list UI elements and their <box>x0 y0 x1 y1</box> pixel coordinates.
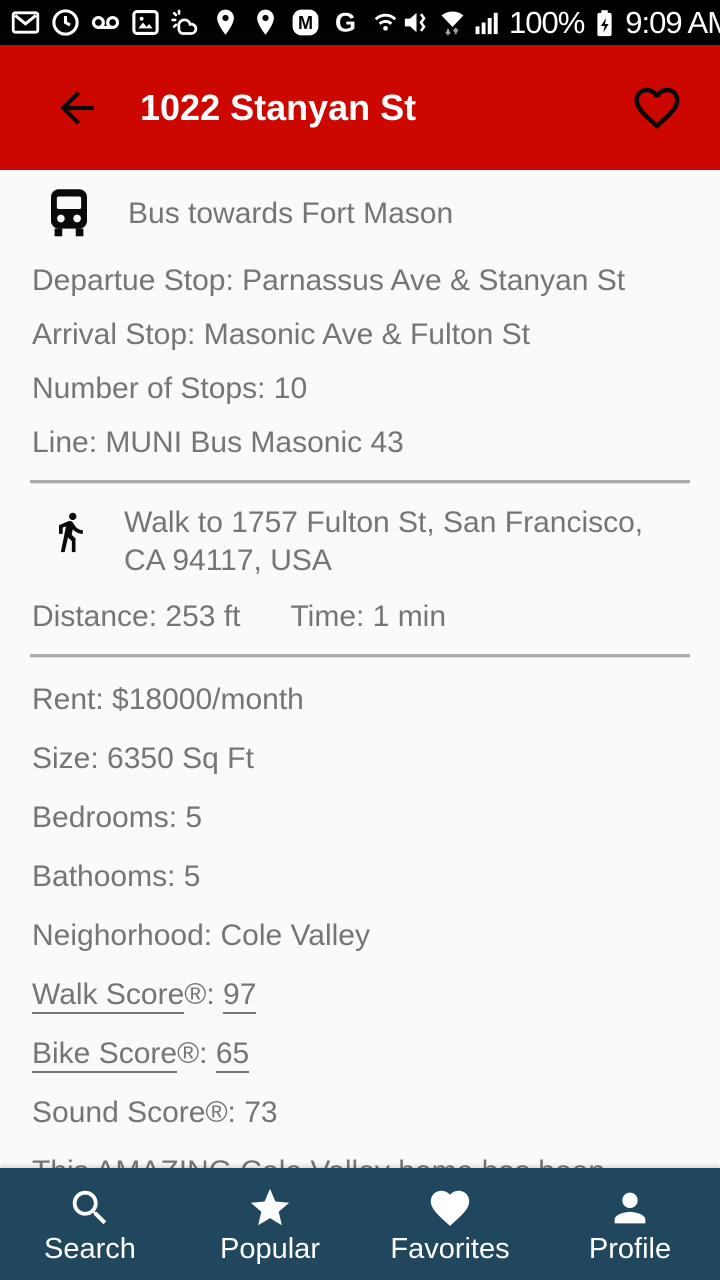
bus-icon <box>42 184 96 244</box>
walk-time-text: Time: 1 min <box>290 600 446 633</box>
search-icon <box>67 1185 113 1231</box>
nav-label-favorites: Favorites <box>390 1234 509 1264</box>
walk-distance-text: Distance: 253 ft <box>32 600 240 633</box>
status-bar-system-icons: 100% 9:09 AM <box>401 5 720 41</box>
network-monitor-icon <box>370 7 401 38</box>
walk-stats-row: Distance: 253 ftTime: 1 min <box>32 600 720 634</box>
app-bar: 1022 Stanyan St <box>0 45 720 170</box>
sound-score-text: Sound Score®: 73 <box>32 1096 720 1130</box>
nav-tab-popular[interactable]: Popular <box>180 1168 360 1280</box>
back-arrow-icon <box>52 121 102 136</box>
m-badge-icon: M <box>290 7 321 38</box>
data-usage-clock-icon <box>50 7 81 38</box>
bathrooms-text: Bathooms: 5 <box>32 860 720 894</box>
bike-score-value-link[interactable]: 65 <box>216 1037 249 1073</box>
bus-leg-title: Bus towards Fort Mason <box>128 184 453 244</box>
walking-person-icon <box>48 504 92 560</box>
favorite-button[interactable] <box>630 81 684 135</box>
svg-text:G: G <box>335 7 356 38</box>
bedrooms-text: Bedrooms: 5 <box>32 801 720 835</box>
nav-label-search: Search <box>44 1234 136 1264</box>
signal-strength-icon <box>473 7 504 38</box>
section-divider <box>30 654 690 658</box>
photos-icon <box>130 7 161 38</box>
star-icon <box>247 1185 293 1231</box>
walk-score-suffix: ®: <box>184 978 223 1011</box>
google-g-icon: G <box>330 7 361 38</box>
page-title: 1022 Stanyan St <box>140 87 416 129</box>
bike-score-suffix: ®: <box>177 1037 216 1070</box>
status-bar: M G 100% 9:09 AM <box>0 0 720 45</box>
svg-text:M: M <box>298 13 313 33</box>
nav-label-profile: Profile <box>589 1234 671 1264</box>
person-icon <box>607 1185 653 1231</box>
number-of-stops-text: Number of Stops: 10 <box>32 372 720 406</box>
walk-score-row: Walk Score®: 97 <box>32 978 720 1012</box>
nav-tab-favorites[interactable]: Favorites <box>360 1168 540 1280</box>
heart-outline-icon <box>630 123 684 138</box>
volume-muted-vibrate-icon <box>401 7 432 38</box>
battery-percent-text: 100% <box>509 5 584 41</box>
walk-leg-header: Walk to 1757 Fulton St, San Francisco, C… <box>0 504 720 580</box>
rent-text: Rent: $18000/month <box>32 683 720 717</box>
listing-facts: Rent: $18000/month Size: 6350 Sq Ft Bedr… <box>0 683 720 1189</box>
voicemail-icon <box>90 7 121 38</box>
clock-text: 9:09 AM <box>625 5 720 41</box>
heart-icon <box>427 1185 473 1231</box>
neighborhood-text: Neighorhood: Cole Valley <box>32 919 720 953</box>
bus-line-text: Line: MUNI Bus Masonic 43 <box>32 426 720 460</box>
arrival-stop-text: Arrival Stop: Masonic Ave & Fulton St <box>32 318 720 352</box>
bike-score-row: Bike Score®: 65 <box>32 1037 720 1071</box>
screen: M G 100% 9:09 AM <box>0 0 720 1280</box>
bus-leg-header: Bus towards Fort Mason <box>0 184 720 244</box>
walk-leg-title: Walk to 1757 Fulton St, San Francisco, C… <box>124 504 690 580</box>
listing-detail-content: Bus towards Fort Mason Departue Stop: Pa… <box>0 170 720 1189</box>
weather-icon <box>170 7 201 38</box>
wifi-icon <box>437 7 468 38</box>
walk-score-link[interactable]: Walk Score <box>32 978 184 1014</box>
nav-tab-profile[interactable]: Profile <box>540 1168 720 1280</box>
nav-label-popular: Popular <box>220 1234 320 1264</box>
bottom-navigation: Search Popular Favorites Profile <box>0 1168 720 1280</box>
gmail-icon <box>10 7 41 38</box>
maps-pin-icon <box>210 7 241 38</box>
maps-pin-icon <box>250 7 281 38</box>
nav-tab-search[interactable]: Search <box>0 1168 180 1280</box>
departure-stop-text: Departue Stop: Parnassus Ave & Stanyan S… <box>32 264 720 298</box>
size-text: Size: 6350 Sq Ft <box>32 742 720 776</box>
section-divider <box>30 480 690 484</box>
bike-score-link[interactable]: Bike Score <box>32 1037 177 1073</box>
status-bar-notification-icons: M G <box>10 7 401 38</box>
back-button[interactable] <box>52 83 102 133</box>
battery-charging-icon <box>589 7 620 38</box>
walk-score-value-link[interactable]: 97 <box>223 978 256 1014</box>
